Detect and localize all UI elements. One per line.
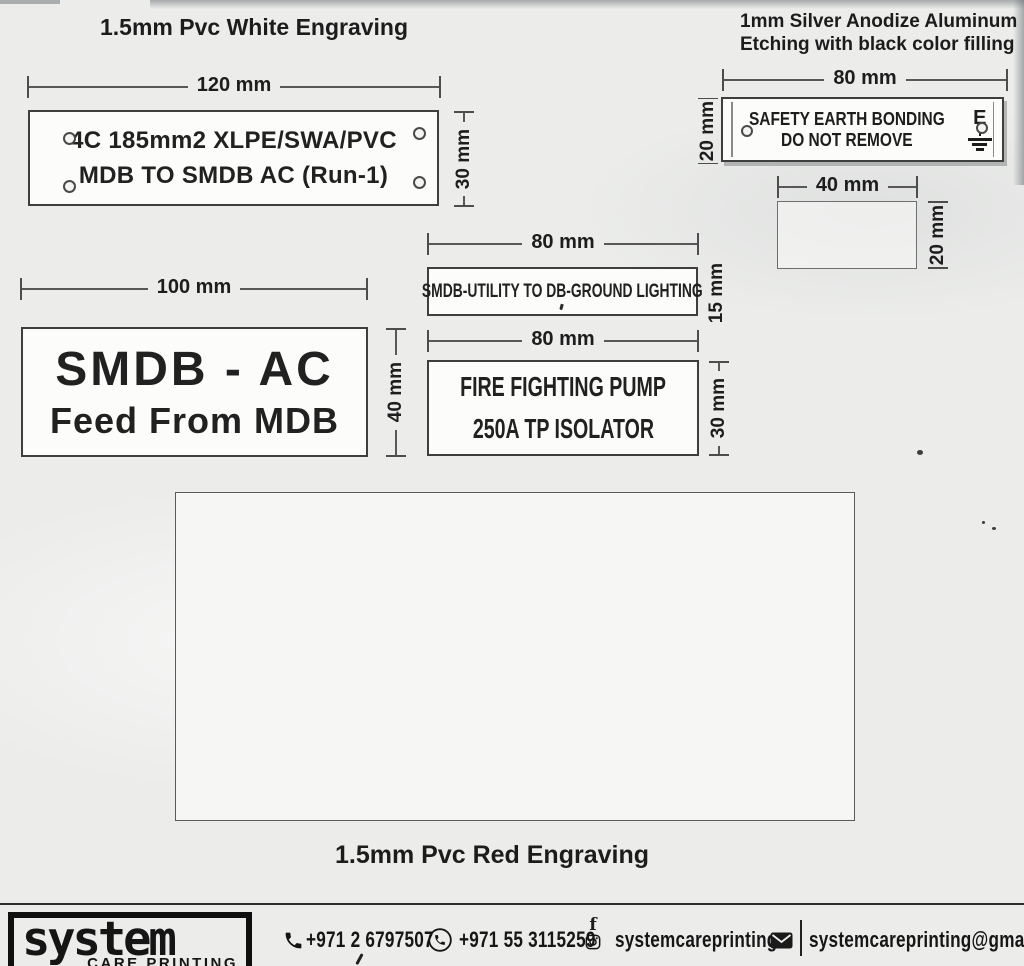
- email-address: systemcareprinting@gmail.com: [809, 922, 1024, 958]
- plate-smdb-ac: SMDB - AC Feed From MDB: [21, 327, 368, 457]
- scan-shadow-top: [150, 0, 1024, 9]
- phone-mobile: +971 55 3115259: [459, 922, 634, 958]
- plate-text-line1: SMDB - AC: [55, 341, 334, 399]
- instagram-icon: [585, 934, 601, 950]
- dim-line: [22, 288, 148, 290]
- heading-aluminum-line1: 1mm Silver Anodize Aluminum: [740, 10, 1017, 33]
- footer-divider: [0, 903, 1024, 905]
- heading-pvc-red-engraving: 1.5mm Pvc Red Engraving: [335, 841, 649, 870]
- plate-text: SAFETY EARTH BONDING DO NOT REMOVE: [749, 109, 945, 151]
- heading-aluminum-etching: 1mm Silver Anodize Aluminum Etching with…: [740, 10, 1017, 56]
- dim-tick: [709, 454, 729, 456]
- whatsapp-icon: [427, 922, 453, 958]
- dim-tick: [916, 176, 918, 198]
- dim-width-fire-plate: 80 mm: [427, 329, 699, 353]
- plate-bevel: [731, 102, 733, 157]
- dim-label: 120 mm: [188, 73, 281, 97]
- plate-fire-fighting-pump: FIRE FIGHTING PUMP 250A TP ISOLATOR: [427, 360, 699, 456]
- scan-speck: [992, 527, 996, 530]
- social-icons: f: [585, 917, 601, 950]
- dim-height-smdb-ac-plate: 40 mm: [379, 328, 413, 457]
- dim-height-utility-plate: 15 mm: [700, 261, 734, 323]
- dim-line: [888, 186, 916, 188]
- dim-label: 15 mm: [706, 261, 728, 325]
- dim-tick: [697, 233, 699, 255]
- footer-separator-bar: [800, 920, 802, 956]
- dim-label: 30 mm: [708, 371, 730, 445]
- plate-text-line2: MDB TO SMDB AC (Run-1): [79, 158, 388, 193]
- dim-tick: [439, 76, 441, 98]
- plate-text-line2: 250A TP ISOLATOR: [472, 408, 653, 450]
- dim-tick: [928, 267, 948, 269]
- dim-line: [463, 196, 465, 205]
- dim-line: [29, 86, 188, 88]
- plate-text-line1: SAFETY EARTH BONDING: [749, 109, 945, 130]
- dim-label: 20 mm: [927, 203, 949, 267]
- heading-aluminum-line2: Etching with black color filling: [740, 33, 1017, 56]
- dim-tick: [386, 455, 406, 457]
- dim-line: [724, 79, 824, 81]
- plate-text-line2: DO NOT REMOVE: [749, 130, 945, 151]
- plate-text-line1: SMDB-UTILITY TO DB-GROUND LIGHTING: [422, 281, 703, 303]
- dim-width-mdb-plate: 120 mm: [27, 75, 441, 99]
- dim-label: 80 mm: [522, 327, 603, 351]
- dim-tick: [1006, 69, 1008, 91]
- mounting-hole: [976, 122, 988, 134]
- plate-text-line1: FIRE FIGHTING PUMP: [460, 366, 666, 408]
- dim-line: [429, 340, 522, 342]
- plate-blank-small: [777, 201, 917, 269]
- dim-label: 40 mm: [385, 355, 407, 429]
- plate-text-line1: 4C 185mm2 XLPE/SWA/PVC: [70, 123, 397, 158]
- dim-line: [906, 79, 1006, 81]
- dim-line: [718, 446, 720, 454]
- company-logo: system CARE PRINTING: [8, 912, 252, 966]
- dim-tick: [454, 205, 474, 207]
- facebook-icon: f: [589, 917, 596, 933]
- dim-line: [604, 340, 697, 342]
- scan-speck: [917, 450, 923, 455]
- scanned-label-proof-sheet: 1.5mm Pvc White Engraving 1mm Silver Ano…: [0, 0, 1024, 966]
- dim-height-mdb-plate: 30 mm: [447, 111, 481, 207]
- dim-width-blank-plate: 40 mm: [777, 175, 918, 199]
- heading-pvc-white-engraving: 1.5mm Pvc White Engraving: [100, 14, 408, 41]
- dim-line: [395, 330, 397, 355]
- dim-width-safety-plate: 80 mm: [722, 68, 1008, 92]
- mounting-hole: [413, 127, 426, 140]
- dim-label: 100 mm: [148, 275, 241, 299]
- email-icon: [770, 922, 793, 958]
- dim-width-utility-plate: 80 mm: [427, 232, 699, 256]
- plate-smdb-utility: SMDB-UTILITY TO DB-GROUND LIGHTING: [427, 267, 698, 316]
- dim-label: 80 mm: [522, 230, 603, 254]
- dim-label: 80 mm: [824, 66, 905, 90]
- mounting-hole: [413, 176, 426, 189]
- plate-text-line2: Feed From MDB: [50, 399, 339, 443]
- dim-line: [395, 430, 397, 455]
- scan-speck: [982, 521, 985, 524]
- scan-shadow-top-left: [0, 0, 60, 4]
- logo-tagline: CARE PRINTING: [87, 955, 238, 966]
- dim-label: 30 mm: [453, 122, 475, 196]
- dim-tick: [698, 163, 718, 164]
- phone-icon: [283, 922, 304, 958]
- dim-height-blank-plate: 20 mm: [921, 201, 955, 269]
- dim-tick: [697, 330, 699, 352]
- dim-width-smdb-ac-plate: 100 mm: [20, 277, 368, 301]
- dim-tick: [366, 278, 368, 300]
- plate-blank-large-red-engraving: [175, 492, 855, 821]
- plate-bevel: [993, 102, 995, 157]
- dim-height-fire-plate: 30 mm: [702, 361, 736, 456]
- mounting-hole: [63, 180, 76, 193]
- dim-label: 40 mm: [807, 173, 888, 197]
- dim-height-safety-plate: 20 mm: [691, 98, 725, 164]
- mounting-hole: [63, 132, 76, 145]
- dim-line: [604, 243, 697, 245]
- dim-line: [463, 113, 465, 122]
- dim-line: [240, 288, 366, 290]
- plate-safety-earth-bonding: SAFETY EARTH BONDING DO NOT REMOVE E: [721, 97, 1004, 162]
- dim-line: [779, 186, 807, 188]
- dim-line: [280, 86, 439, 88]
- dim-line: [429, 243, 522, 245]
- scan-artifact: [559, 304, 563, 311]
- dim-label: 20 mm: [697, 99, 719, 163]
- plate-mdb-cable-label: 4C 185mm2 XLPE/SWA/PVC MDB TO SMDB AC (R…: [28, 110, 439, 206]
